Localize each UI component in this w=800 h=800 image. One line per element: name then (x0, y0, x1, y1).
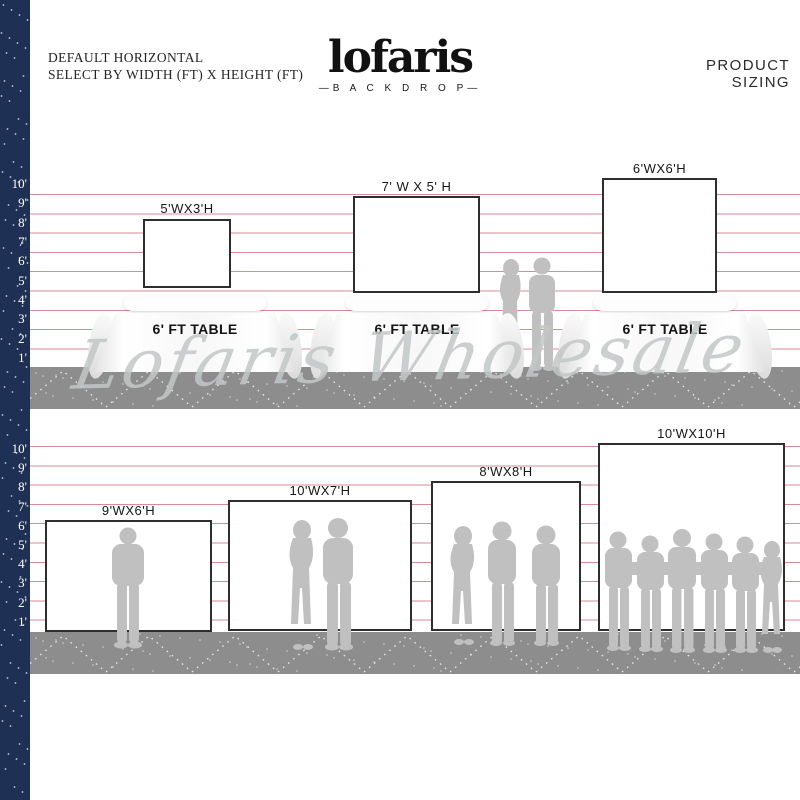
ruler-mark: 1' (0, 351, 27, 364)
brand-logo: lofaris —B A C K D R O P— (300, 36, 500, 94)
ruler-mark: 5' (0, 538, 27, 551)
ruler-mark: 6' (0, 254, 27, 267)
ruler-mark: 7' (0, 500, 27, 513)
ruler-mark: 2' (0, 332, 27, 345)
ruler-mark: 3' (0, 576, 27, 589)
backdrop-size-label: 5'WX3'H (143, 201, 231, 216)
backdrop-size-label: 7' W X 5' H (353, 179, 480, 194)
tablecloth (317, 304, 517, 372)
product-sizing-chart: 10' 9' 8' 7' 6' 5' 4' 3' 2' 1' 10' 9' 8'… (0, 0, 800, 800)
tablecloth (95, 304, 295, 372)
ruler-mark: 3' (0, 312, 27, 325)
man-silhouette (100, 527, 156, 649)
backdrop-size-label: 9'WX6'H (45, 503, 212, 518)
backdrop-6x6 (602, 178, 717, 293)
ruler-mark: 1' (0, 615, 27, 628)
table-top (593, 295, 737, 311)
page-title: PRODUCT SIZING (650, 57, 790, 91)
ruler-mark: 5' (0, 274, 27, 287)
backdrop-size-label: 10'WX10'H (598, 426, 785, 441)
backdrop-size-label: 8'WX8'H (431, 464, 581, 479)
couple-silhouette (278, 516, 366, 652)
table-size-label: 6' FT TABLE (565, 321, 765, 337)
ruler-mark: 10' (0, 177, 27, 190)
table-top (123, 295, 267, 311)
size-selection-note: DEFAULT HORIZONTAL SELECT BY WIDTH (FT) … (48, 50, 303, 83)
table-6ft: 6' FT TABLE (565, 295, 765, 377)
brand-tagline: —B A C K D R O P— (300, 83, 500, 94)
ruler-mark: 10' (0, 442, 27, 455)
table-6ft: 6' FT TABLE (95, 295, 295, 377)
left-border-strip (0, 0, 30, 800)
ruler-mark: 8' (0, 480, 27, 493)
backdrop-size-label: 6'WX6'H (602, 161, 717, 176)
table-6ft: 6' FT TABLE (317, 295, 517, 377)
ruler-mark: 2' (0, 596, 27, 609)
tablecloth (565, 304, 765, 372)
group-of-six-silhouette (600, 526, 785, 658)
speckle-pattern (0, 0, 30, 800)
backdrop-5x3 (143, 219, 231, 288)
table-top (345, 295, 489, 311)
ruler-mark: 6' (0, 519, 27, 532)
note-line2: SELECT BY WIDTH (FT) X HEIGHT (FT) (48, 67, 303, 84)
table-size-label: 6' FT TABLE (317, 321, 517, 337)
note-line1: DEFAULT HORIZONTAL (48, 50, 303, 67)
ruler-mark: 8' (0, 216, 27, 229)
ruler-mark: 9' (0, 461, 27, 474)
backdrop-7x5 (353, 196, 480, 293)
ruler-mark: 9' (0, 196, 27, 209)
backdrop-size-label: 10'WX7'H (228, 483, 412, 498)
brand-name: lofaris (300, 36, 500, 80)
ruler-mark: 4' (0, 293, 27, 306)
group-of-three-silhouette (440, 518, 575, 648)
ruler-mark: 4' (0, 557, 27, 570)
ruler-mark: 7' (0, 235, 27, 248)
table-size-label: 6' FT TABLE (95, 321, 295, 337)
